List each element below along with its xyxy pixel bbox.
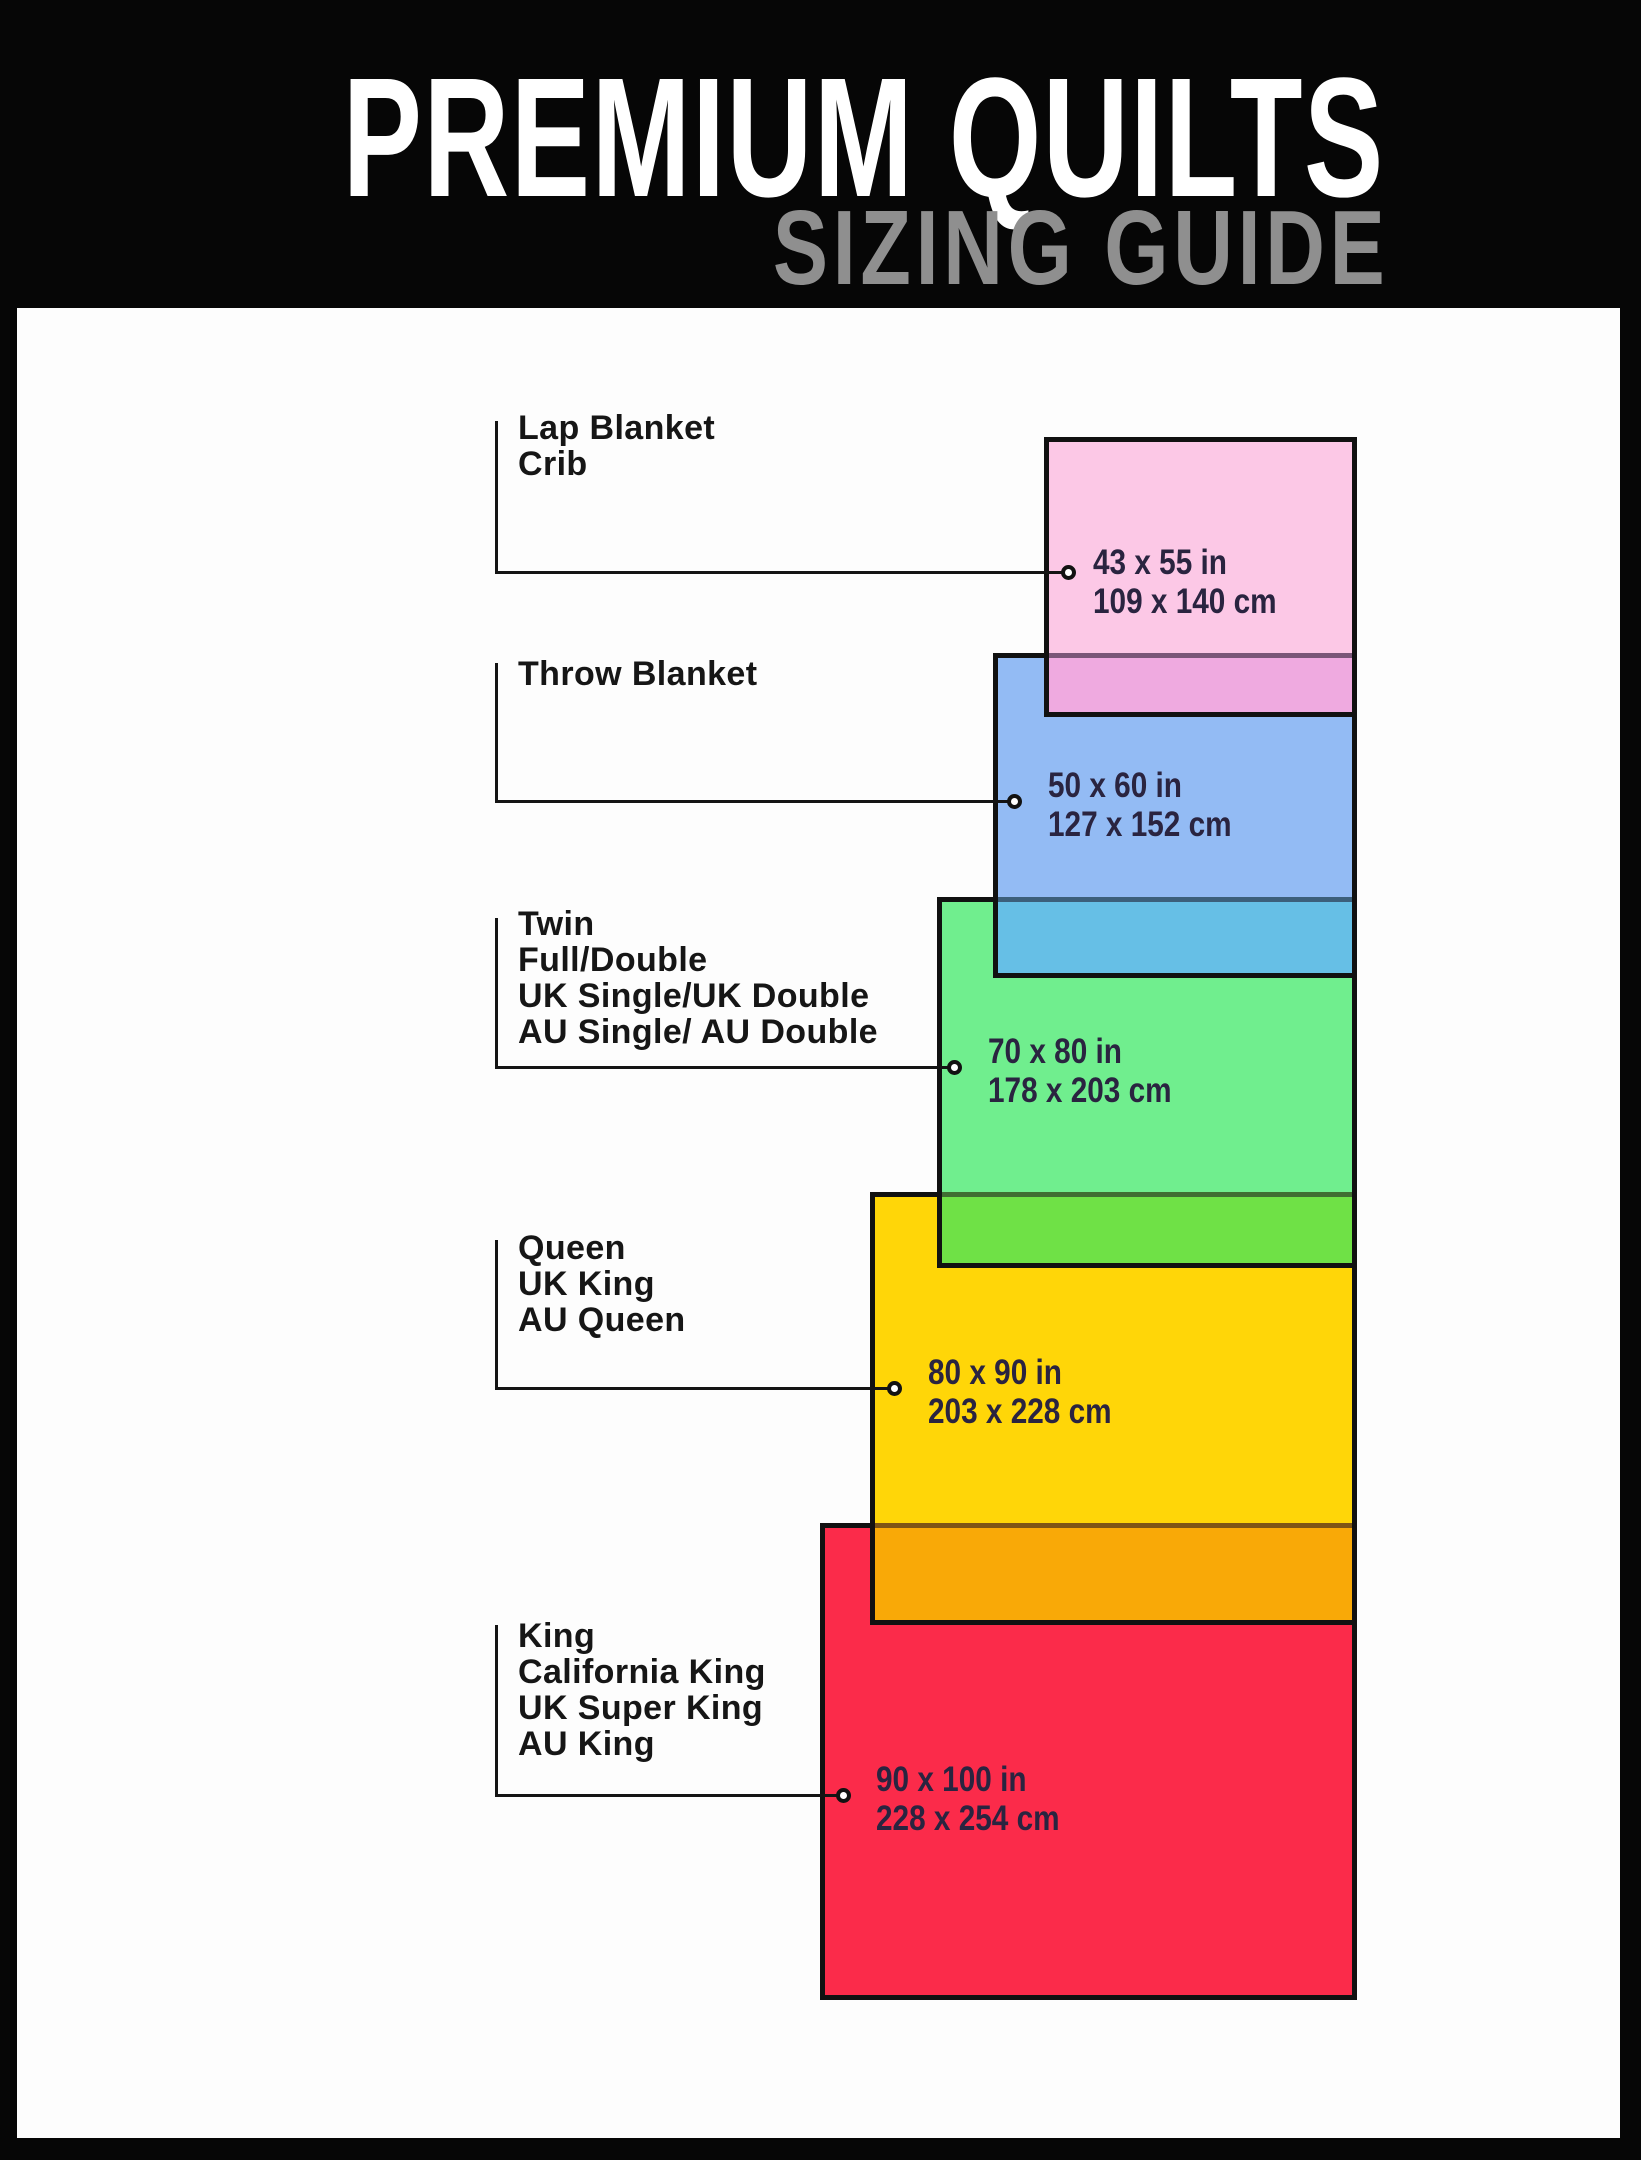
king-marker-dot [836, 1788, 851, 1803]
label-line: Throw Blanket [518, 656, 757, 692]
throw-label: Throw Blanket [518, 656, 757, 692]
content-panel [17, 308, 1620, 2138]
dims-in: 43 x 55 in [1093, 543, 1227, 582]
twin-bracket-vline [495, 918, 498, 1069]
queen-label: Queen UK King AU Queen [518, 1230, 686, 1338]
throw-marker-dot [1007, 794, 1022, 809]
throw-bracket-vline [495, 663, 498, 803]
label-line: Full/Double [518, 942, 878, 978]
label-line: California King [518, 1654, 766, 1690]
label-line: AU Queen [518, 1302, 686, 1338]
dims-cm: 127 x 152 cm [1048, 805, 1232, 844]
label-line: AU King [518, 1726, 766, 1762]
dims-in: 70 x 80 in [988, 1032, 1122, 1071]
dims-in: 80 x 90 in [928, 1353, 1062, 1392]
queen-marker-dot [887, 1381, 902, 1396]
quilt-sizing-infographic: { "header": { "title": "PREMIUM QUILTS",… [0, 0, 1641, 2160]
queen-dimensions: 80 x 90 in 203 x 228 cm [928, 1353, 1144, 1431]
lap-label: Lap Blanket Crib [518, 410, 715, 482]
dims-cm: 109 x 140 cm [1093, 582, 1277, 621]
page-subtitle: SIZING GUIDE [773, 188, 1390, 309]
dims-cm: 228 x 254 cm [876, 1799, 1060, 1838]
lap-dimensions: 43 x 55 in 109 x 140 cm [1093, 543, 1309, 621]
dims-cm: 178 x 203 cm [988, 1071, 1172, 1110]
label-line: UK Super King [518, 1690, 766, 1726]
label-line: King [518, 1618, 766, 1654]
label-line: Queen [518, 1230, 686, 1266]
king-bracket-hline [495, 1794, 837, 1797]
king-bracket-vline [495, 1625, 498, 1797]
label-line: AU Single/ AU Double [518, 1014, 878, 1050]
lap-marker-dot [1061, 565, 1076, 580]
dims-cm: 203 x 228 cm [928, 1392, 1112, 1431]
queen-bracket-vline [495, 1240, 498, 1390]
twin-dimensions: 70 x 80 in 178 x 203 cm [988, 1032, 1204, 1110]
label-line: Crib [518, 446, 715, 482]
label-line: Twin [518, 906, 878, 942]
twin-label: Twin Full/Double UK Single/UK Double AU … [518, 906, 878, 1050]
label-line: Lap Blanket [518, 410, 715, 446]
twin-bracket-hline [495, 1066, 948, 1069]
throw-dimensions: 50 x 60 in 127 x 152 cm [1048, 766, 1264, 844]
king-dimensions: 90 x 100 in 228 x 254 cm [876, 1760, 1092, 1838]
throw-bracket-hline [495, 800, 1008, 803]
label-line: UK King [518, 1266, 686, 1302]
queen-bracket-hline [495, 1387, 888, 1390]
lap-bracket-vline [495, 421, 498, 574]
dims-in: 50 x 60 in [1048, 766, 1182, 805]
lap-bracket-hline [495, 571, 1062, 574]
label-line: UK Single/UK Double [518, 978, 878, 1014]
king-label: King California King UK Super King AU Ki… [518, 1618, 766, 1762]
dims-in: 90 x 100 in [876, 1760, 1027, 1799]
twin-marker-dot [947, 1060, 962, 1075]
